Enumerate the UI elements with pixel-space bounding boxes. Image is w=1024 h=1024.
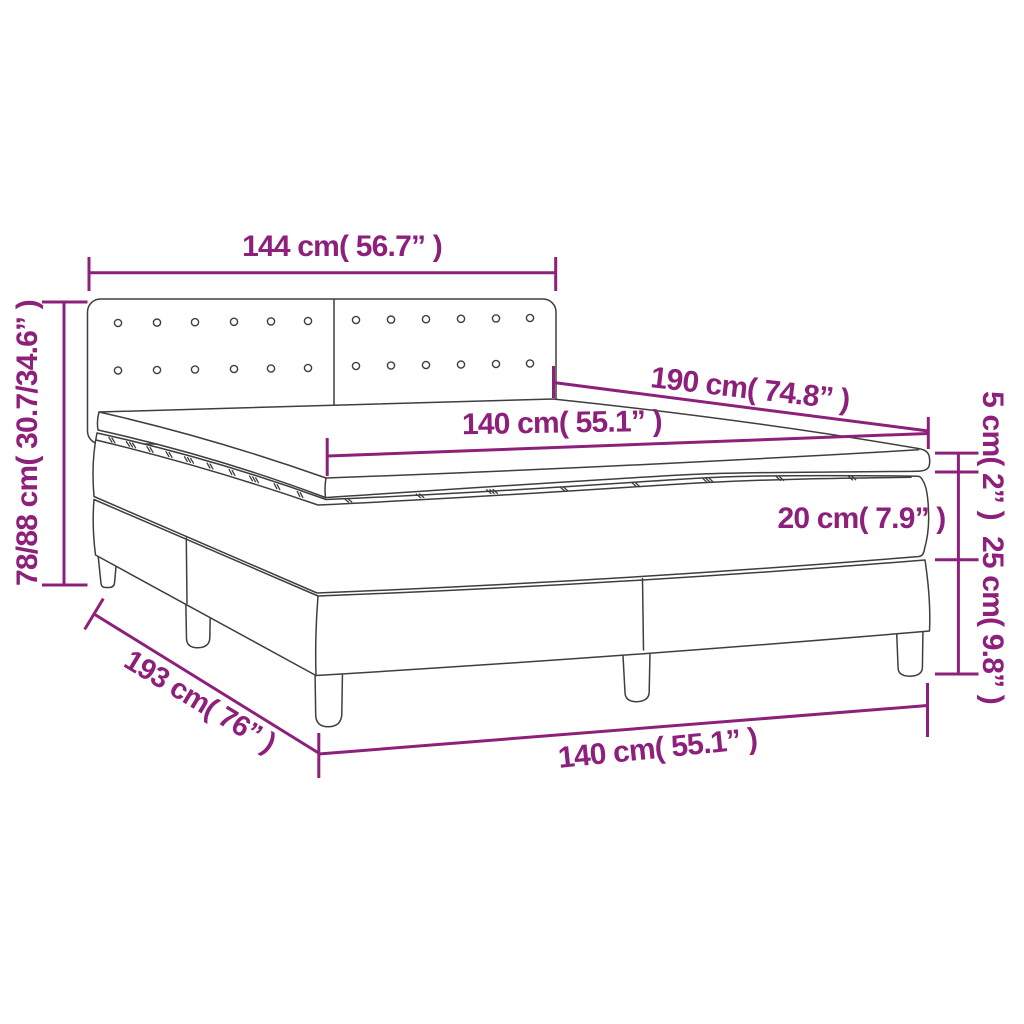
svg-text:20 cm( 7.9” ): 20 cm( 7.9” ) [777,502,945,535]
svg-text:193 cm( 76” ): 193 cm( 76” ) [118,644,280,759]
svg-text:5 cm( 2” ): 5 cm( 2” ) [976,391,1009,520]
svg-text:140 cm( 55.1” ): 140 cm( 55.1” ) [557,722,759,775]
svg-text:140 cm( 55.1” ): 140 cm( 55.1” ) [462,405,662,441]
svg-text:25 cm( 9.8” ): 25 cm( 9.8” ) [976,536,1009,704]
svg-text:144 cm( 56.7” ): 144 cm( 56.7” ) [242,230,442,263]
svg-text:78/88 cm( 30.7/34.6” ): 78/88 cm( 30.7/34.6” ) [11,300,44,586]
